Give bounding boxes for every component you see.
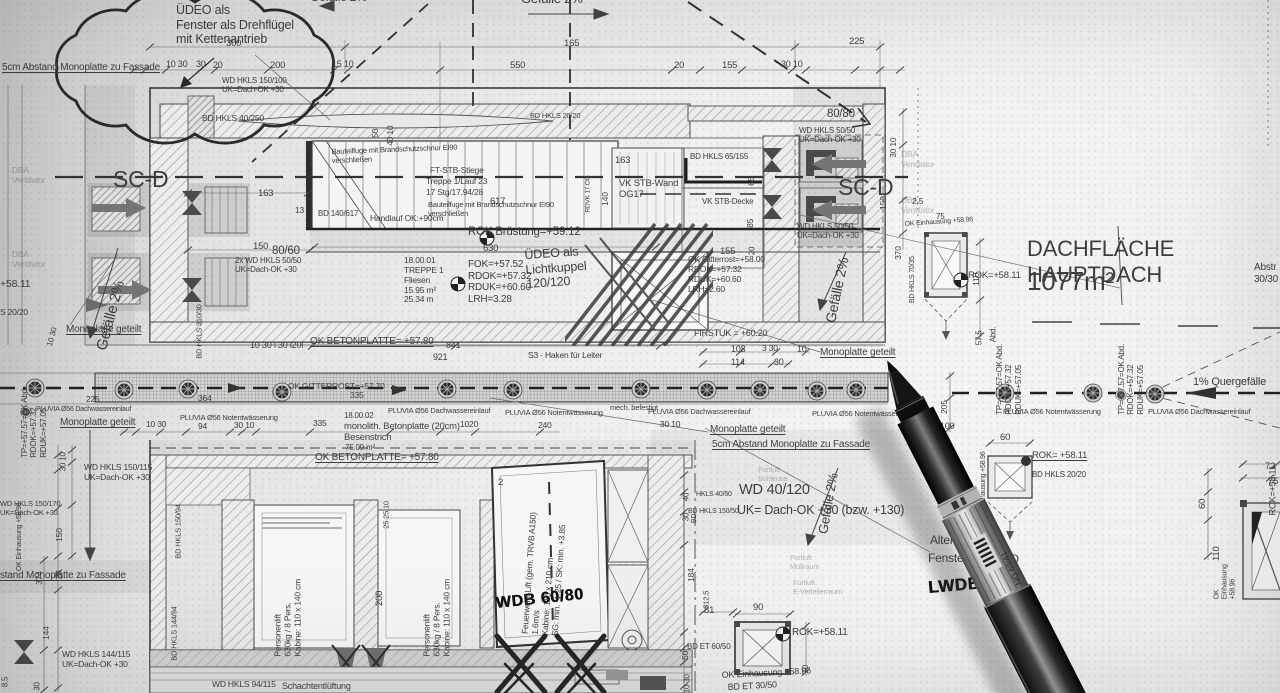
dim-60-v-b: 60	[1197, 499, 1208, 509]
dim-3-30: 3 30	[762, 344, 778, 354]
dim-150-l: 150	[253, 241, 268, 252]
personenlift-2: Personenlift 630kg / 8 Pers. Kabine: 110…	[422, 579, 452, 657]
dachflaeche-area: 1077m²	[1027, 266, 1114, 296]
bd-hkls-310-30: BD HKLS 310/30	[195, 304, 204, 358]
dim-155-tm: 155	[722, 60, 737, 71]
pluvia-dach-r: PLUVIA Ø56 Dachwassereinlauf	[1148, 408, 1250, 417]
dim-200-v: 200	[374, 591, 385, 606]
pluvia-dach-2: PLUVIA Ø56 Dachwassereinlauf	[648, 408, 750, 417]
dim-90: 90	[753, 602, 763, 613]
gefalle-top: Gefälle 2%	[521, 0, 583, 6]
dim-205-v: 205	[940, 400, 950, 414]
fortluft-verteiler: Fortluft E-Verteilerraum	[793, 579, 842, 596]
ok-betonplatte-2: OK BETONPLATTE= +57.80	[315, 452, 439, 464]
dim-2-5: 2,5	[912, 197, 923, 207]
dim-13: 13	[295, 206, 304, 216]
dim-65-v: 65	[747, 177, 757, 186]
gefalle-right: Gefälle 2%	[822, 256, 852, 324]
dim-30-10-tm: 30 10	[781, 59, 803, 69]
ok-gitterrost-block: OK Gitterrost=+58.00 RDOK=+57.32 RDUK=+6…	[688, 255, 765, 294]
dim-50-v1: 50	[371, 129, 381, 138]
bd-hkls-65-155: BD HKLS 65/155	[690, 152, 748, 161]
fortluft-muellraum: Fortluft Müllraum	[790, 554, 819, 571]
area-75-09: 75.09 m²	[345, 443, 375, 452]
dim-30-10-v-tr: 30 10	[889, 138, 899, 158]
hkls-40-50: HKLS 40/50	[696, 491, 732, 499]
wd-hkls-150-100: WD HKLS 150/100 UK=Dach-OK +30	[222, 76, 287, 95]
schachtentlueftung: Schachtentlüftung	[282, 681, 351, 691]
dim-225: 225	[849, 36, 864, 47]
dim-1020: 1020	[460, 420, 478, 430]
monoplatte-l2: Monoplatte geteilt	[60, 417, 135, 429]
dim-30-10-b2: 30 10	[660, 420, 680, 430]
bd-hkls-144-94: BD HKLS 144/94	[170, 606, 179, 660]
dim-20-tm: 20	[674, 60, 684, 71]
dim-15-10: 15 10	[332, 59, 354, 69]
dim-40-10-v1: 40 10	[386, 126, 396, 146]
dim-10-r: 10	[797, 344, 807, 354]
rdvk-17og: RDVK 17.OG	[584, 176, 592, 213]
dim-225-band-l: 225	[86, 395, 100, 405]
pluvia-not-r: PLUVIA Ø56 Notentwässerung	[1003, 408, 1101, 417]
pluvia-not-1: PLUVIA Ø56 Notentwässerung	[180, 414, 278, 423]
sc-d-left: SC-D	[113, 166, 168, 193]
dim-8-5: 8.5	[1, 677, 10, 688]
vk-stb-wand: VK STB-Wand OG17	[619, 178, 678, 200]
blueprint-photo: 5cm Abstand Monoplatte zu FassadeÜDEO al…	[0, 0, 1280, 693]
dim-30-10-v-bl: 30 10	[59, 452, 68, 471]
dim-80-80: 80/80	[827, 108, 855, 121]
dim-163-l: 163	[258, 188, 273, 199]
dba-ventilator-l1: DBA Ventilator	[12, 166, 45, 186]
dim-10-30-b1: 10 30	[146, 420, 166, 430]
abstr-30-30: Abstr 30/30	[1254, 262, 1278, 285]
dim-200-tl: 200	[270, 60, 285, 71]
dim-100-r: 100	[940, 421, 954, 431]
pluvia-not-3: PLUVIA Ø56 Notentwässerung	[812, 410, 910, 419]
dim-10-30-v-bl: 10 30	[33, 682, 42, 693]
dim-841: 841	[446, 340, 460, 350]
fortluft-schleuse: Fortluft Schleuse	[758, 466, 787, 483]
bd-hkls-20-20-top: BD HKLS 20/20	[530, 112, 580, 121]
dim-50-v-bc: 50	[681, 651, 691, 660]
ok-gitterrost-band: OK GITTERROST=+57.70	[288, 382, 385, 392]
s-20-20-l: S 20/20	[0, 308, 28, 318]
wd-hkls-50-50-top: WD HKLS 50/50 UK=Dach-OK +30	[799, 126, 861, 145]
dim-60-a: 60	[1000, 432, 1010, 443]
ok-einhausung-1: OK Einhausung +58.96	[904, 216, 973, 229]
dim-30-r: 30	[774, 357, 784, 367]
dim-57-5-v: 57.5	[975, 330, 984, 345]
dba-ventilator-r1: DBA Ventilator	[901, 150, 934, 170]
abstand-fassade-top: 5cm Abstand Monoplatte zu Fassade	[2, 62, 160, 74]
dim-163-c: 163	[615, 155, 630, 166]
wd-2x-hkls: 2x WD HKLS 50/50 UK=Dach-OK +30	[235, 256, 301, 275]
s3-haken: S3 - Haken für Leiter	[528, 351, 602, 361]
bd-140-617: BD 140/617	[318, 209, 358, 218]
dim-630: 630	[483, 243, 498, 254]
dim-240: 240	[538, 421, 552, 431]
tp-block-r1: TP=+57.57=OK Abd. RDOK=+57.32 RDUK=+57.0…	[995, 344, 1023, 415]
annotation-layer: 5cm Abstand Monoplatte zu FassadeÜDEO al…	[0, 0, 1280, 693]
ok-einhausung-5: OK Einhausung +58.96	[721, 665, 811, 680]
bd-v: BD	[691, 514, 699, 523]
rok-bruestung: ROK Brüstung=+59.12	[468, 226, 581, 239]
dim-370-v: 370	[894, 246, 904, 260]
rok-58-11-b: ROK= +58.11	[1032, 450, 1087, 461]
treppe-block: 18.00.01 TREPPE 1 Fliesen 15.95 m² 25.34…	[404, 256, 444, 305]
stg-17: 17 Stg/17.94/28	[426, 188, 483, 198]
dim-335-band: 335	[350, 391, 364, 401]
wd-hkls-150-170: WD HKLS 150/170 UK=Dach-OK +30	[0, 500, 60, 517]
dims-25-25-10: 25 25 10	[382, 501, 391, 529]
dim-108: 108	[731, 344, 745, 354]
bd-hkls-150-94: BD HKLS 150/94	[174, 504, 183, 558]
dim-150-v-r: 150	[879, 196, 889, 210]
alter: Alter	[930, 534, 954, 548]
rok-58-11-c: ROK=+58.11	[792, 627, 848, 639]
wd-hkls-144-115: WD HKLS 144/115 UK=Dach-OK +30	[62, 650, 130, 670]
dim-140-v: 140	[601, 192, 611, 206]
dim-85-v: 85	[746, 219, 756, 228]
dim-40-v-m: 40	[682, 493, 691, 502]
dim-30-tl: 30	[196, 59, 206, 69]
dim-60-v-a: 60	[963, 495, 974, 505]
bauteilfuge-2: Bauteilfuge mit Brandschutzschnur EI90 v…	[428, 201, 554, 218]
wd-hkls-94-115: WD HKLS 94/115	[212, 680, 276, 690]
dim-10-30-v-bc: 10 30	[683, 674, 692, 693]
dim-184-v: 184	[687, 568, 697, 582]
ft-stb-stiege: FT-STB-Stiege	[430, 166, 484, 176]
gefalle-left: Gefälle 2%	[93, 279, 128, 352]
udeo-b: ÜDEO	[985, 553, 1019, 567]
dim-335-b: 335	[313, 419, 327, 429]
ok-einhausung-4: OK Einhausung +58.96	[16, 503, 24, 572]
gefalle-top-2: Gefälle 2%	[310, 0, 367, 5]
bd-et-30-50: BD ET 30/50	[727, 679, 777, 692]
dim-30-v-m: 30	[682, 513, 691, 522]
abd-rot-a: Abd.	[989, 327, 998, 343]
abstand-fassade-r: 5cm Abstand Monoplatte zu Fassade	[712, 439, 870, 451]
feuerwehr-lift: Feuerwehr-Lift (gem. TRVB A150) 1.6m/s K…	[521, 512, 569, 636]
dim-10-30-tl: 10 30	[166, 59, 188, 69]
bd-hkls-20-20-b: BD HKLS 20/20	[1032, 470, 1086, 479]
udeo-lichtkuppel: ÜDEO als Lichtkuppel 120/120	[524, 244, 588, 292]
fok-block: FOK=+57.52 RDOK=+57.32 RDUK=+60.60 LRH=3…	[468, 259, 531, 305]
besenstrich: Besenstrich	[344, 432, 391, 443]
ok-einhausung-3: OK Einhausung +58.96	[1214, 557, 1238, 599]
dim-144-v: 144	[42, 626, 52, 640]
firstuk: FIRSTUK = +60.20	[694, 328, 767, 338]
fenster-b: Fenster	[928, 552, 967, 566]
bd-hkls-40-250: BD HKLS 40/250	[202, 114, 264, 124]
dba-ventilator-l2: DBA Ventilator	[12, 250, 45, 270]
dims-10-30-30-20: 10 30 l 30 l20l	[250, 340, 303, 350]
dim-10-30-l-rot: 10 30	[45, 326, 59, 347]
pluvia-dach-1: PLUVIA Ø56 Dachwassereinlauf	[388, 407, 490, 416]
bauteilfuge-1: Bauteilfuge mit Brandschutzschnur EI90 v…	[331, 144, 457, 166]
tp-block-l: TP=+57.57=OK Abd. RDOK=+57.32 RDUK=+57.0…	[20, 387, 48, 458]
monoplatte-r0: Monoplatte geteilt	[820, 347, 895, 359]
tp-block-r2: TP=+57.57=OK Abd. RDOK=+57.32 RDUK=+57.0…	[1117, 344, 1145, 415]
wd-40-120: WD 40/120	[739, 482, 810, 499]
dim-165: 165	[564, 38, 579, 49]
dim-150-v-bl: 150	[55, 528, 65, 542]
monoplatte-l1: Monoplatte geteilt	[66, 324, 141, 336]
bd-et-60-50: BD ET 60/50	[687, 642, 730, 651]
plus-58-11-l: +58.11	[0, 278, 30, 290]
bd-hkls-70-35: BD HKLS 70/35	[909, 256, 917, 303]
dim-921: 921	[433, 352, 447, 362]
dim-81: 81	[704, 605, 714, 616]
vk-stb-decke: VK STB-Decke	[702, 197, 753, 206]
pluvia-not-2: PLUVIA Ø56 Notentwässerung	[505, 409, 603, 418]
monoplatte-r1: Monoplatte geteilt	[710, 424, 785, 436]
dim-114: 114	[731, 357, 745, 367]
personenlift-1: Personenlift 630kg / 8 Pers. Kabine: 110…	[273, 579, 303, 657]
wd-hkls-50-50-r: WD HKLS 50/50 UK=Dach-OK +30	[797, 222, 859, 241]
dim-94: 94	[198, 422, 207, 432]
label-18-00-02: 18.00.02	[344, 411, 374, 420]
dim-300: 300	[226, 38, 241, 49]
dim-110-v-a: 110	[972, 273, 982, 286]
stand-monoplatte: stand Monoplatte zu Fassade	[0, 570, 126, 582]
wd-hkls-150-115: WD HKLS 150/115 UK=Dach-OK +30	[84, 463, 152, 483]
lwdb: LWDB	[927, 574, 981, 598]
dim-550: 550	[510, 60, 525, 71]
rok-58-11-rot: ROK=+58.11	[1268, 466, 1278, 516]
dim-364-band: 364	[198, 394, 212, 404]
ok-einhausung-2: OK Einhausung +58.96	[980, 452, 988, 521]
pluvia-dach-l: PLUVIA Ø56 Dachwassereinlauf	[36, 406, 131, 414]
quergefaelle: 1% Quergefälle	[1193, 376, 1266, 389]
dim-30-10-b1: 30 10	[234, 421, 254, 431]
dim-2-fw: 2	[498, 477, 503, 488]
monolith: monolith. Betonplatte (20cm)	[344, 421, 460, 432]
dim-20-tl: 20	[213, 60, 223, 70]
treppe-1-lauf: Treppe 1/Lauf 23	[426, 177, 487, 187]
ok-betonplatte-1: OK BETONPLATTE= +57.80	[310, 336, 434, 348]
